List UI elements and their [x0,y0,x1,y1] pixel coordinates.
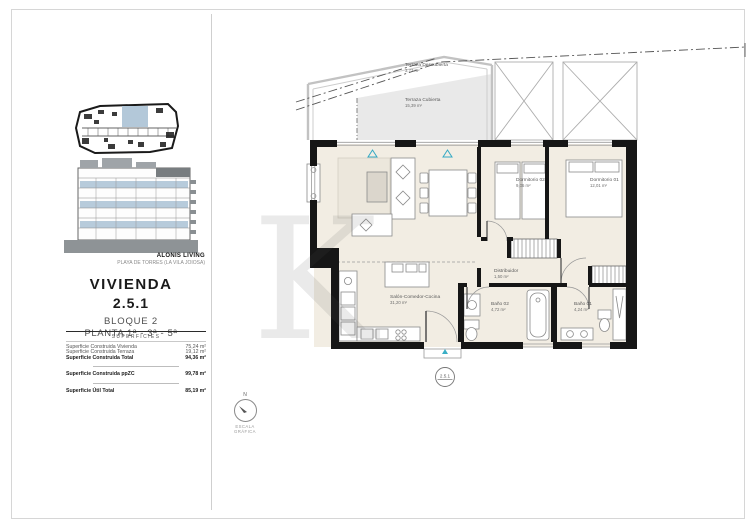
plan-sheet: ALONIS LIVING PLAYA DE TORRES (LA VILA J… [0,0,756,528]
room-area-dormitorio-02: 9,06 m² [516,183,531,188]
entrance-badge-label: 2.5.1 [440,374,451,379]
floor-plan-drawing: 2.5.1 Terraza Descubierta 3,73 m² Terraz… [0,0,756,528]
room-area-terraza-descubierta: 3,73 m² [405,68,420,73]
room-area-dormitorio-01: 12,01 m² [590,183,608,188]
room-area-bano-02: 4,72 m² [491,307,506,312]
room-area-salon: 31,20 m² [390,300,408,305]
dormitorio-01-furniture [566,160,622,217]
window-shutter-box [307,164,320,202]
room-area-terraza-cubierta: 15,39 m² [405,103,423,108]
room-area-bano-01: 4,24 m² [574,307,589,312]
room-area-distribuidor: 1,50 m² [494,274,509,279]
adjacent-void-boxes [495,62,637,140]
